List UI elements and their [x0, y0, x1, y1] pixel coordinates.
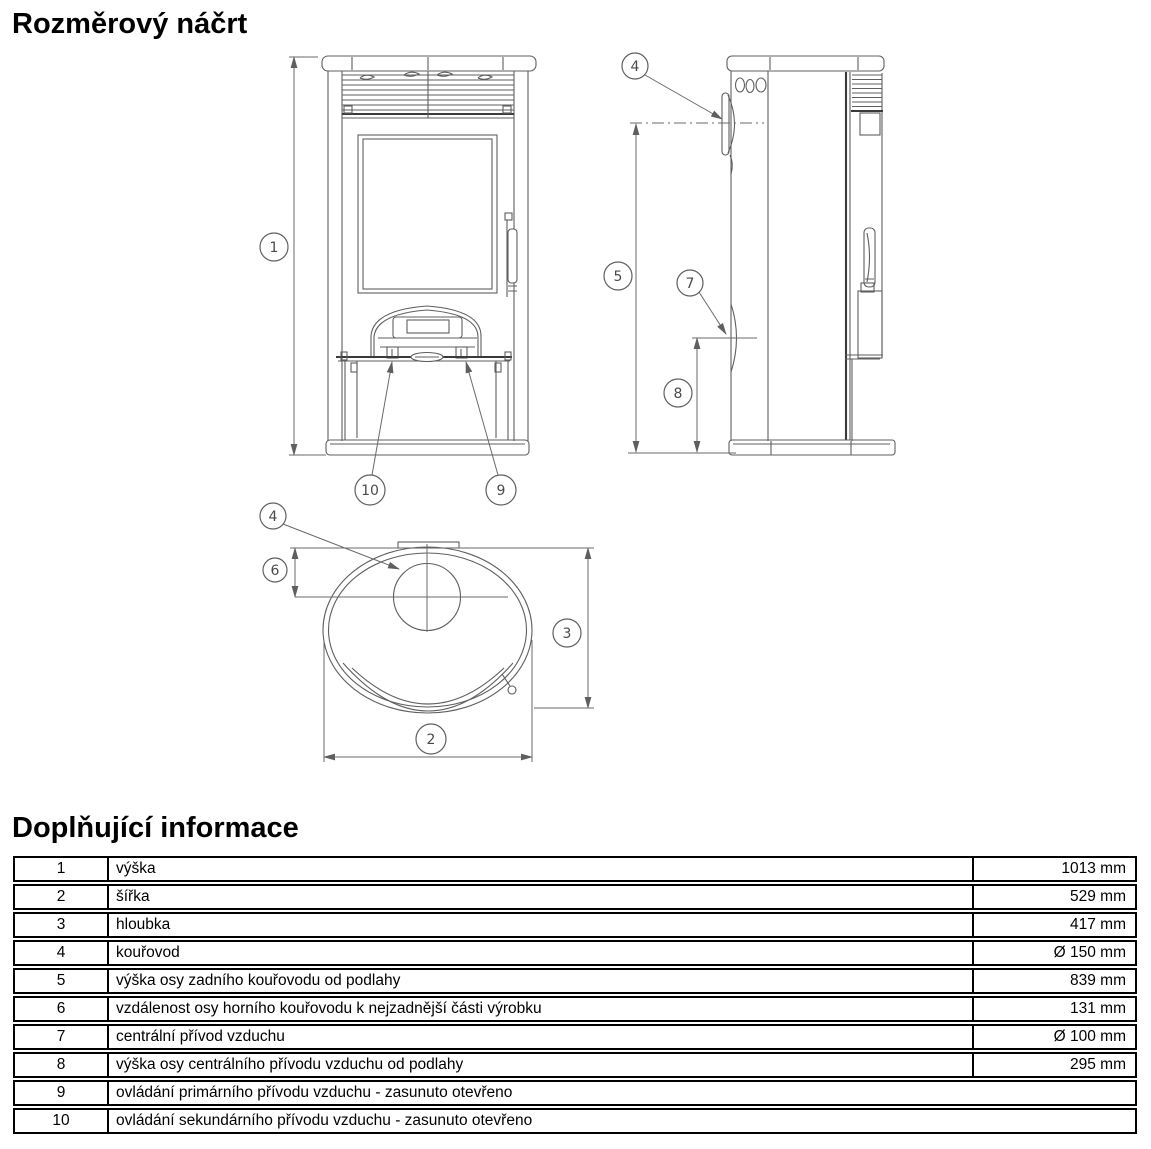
- row-label: výška osy zadního kouřovodu od podlahy: [109, 970, 974, 992]
- callout-7: 7: [677, 270, 726, 334]
- row-number: 9: [15, 1082, 109, 1104]
- front-base-plate: [326, 440, 529, 455]
- callout-10: 10: [355, 362, 392, 505]
- row-label: centrální přívod vzduchu: [109, 1026, 974, 1048]
- row-value: [974, 1110, 1135, 1132]
- info-table: 1 výška 1013 mm 2 šířka 529 mm 3 hloubka…: [13, 856, 1137, 1136]
- row-label: hloubka: [109, 914, 974, 936]
- svg-text:7: 7: [686, 276, 695, 292]
- row-label: vzdálenost osy horního kouřovodu k nejza…: [109, 998, 974, 1020]
- callout-6: 6: [263, 558, 287, 582]
- section-title: Doplňující informace: [12, 812, 299, 845]
- callout-4-side: 4: [622, 53, 722, 119]
- row-value: Ø 150 mm: [974, 942, 1135, 964]
- row-label: šířka: [109, 886, 974, 908]
- row-value: 131 mm: [974, 998, 1135, 1020]
- row-number: 6: [15, 998, 109, 1020]
- top-view: 6 3 2 4: [260, 503, 594, 762]
- svg-text:9: 9: [497, 483, 506, 499]
- row-label: výška: [109, 858, 974, 880]
- page: Rozměrový náčrt: [0, 0, 1151, 1149]
- side-latch-box: [858, 291, 882, 358]
- row-value: 417 mm: [974, 914, 1135, 936]
- central-air-inlet: [692, 304, 757, 372]
- front-view: 1 10 9: [260, 56, 536, 505]
- svg-text:10: 10: [361, 483, 379, 499]
- callout-3: 3: [553, 619, 581, 647]
- row-label: ovládání sekundárního přívodu vzduchu - …: [109, 1110, 974, 1132]
- front-lower-arch: [371, 306, 481, 358]
- row-value: 839 mm: [974, 970, 1135, 992]
- side-top-plate: [727, 56, 884, 71]
- svg-text:2: 2: [427, 732, 436, 748]
- row-number: 2: [15, 886, 109, 908]
- row-number: 5: [15, 970, 109, 992]
- side-base-plate: [729, 440, 895, 455]
- row-label: ovládání primárního přívodu vzduchu - za…: [109, 1082, 974, 1104]
- flue-collar: [722, 93, 735, 174]
- front-door-window: [358, 135, 497, 293]
- svg-text:1: 1: [270, 240, 279, 256]
- table-row: 5 výška osy zadního kouřovodu od podlahy…: [13, 968, 1137, 994]
- row-number: 10: [15, 1110, 109, 1132]
- side-view: 5 8 4 7: [604, 53, 895, 455]
- row-value: 295 mm: [974, 1054, 1135, 1076]
- dimension-drawing: 1 10 9: [0, 0, 1151, 800]
- table-row: 6 vzdálenost osy horního kouřovodu k nej…: [13, 996, 1137, 1022]
- table-row: 2 šířka 529 mm: [13, 884, 1137, 910]
- svg-text:3: 3: [563, 626, 572, 642]
- table-row: 8 výška osy centrálního přívodu vzduchu …: [13, 1052, 1137, 1078]
- table-row: 4 kouřovod Ø 150 mm: [13, 940, 1137, 966]
- callout-2: 2: [416, 724, 446, 754]
- table-row: 9 ovládání primárního přívodu vzduchu - …: [13, 1080, 1137, 1106]
- row-label: kouřovod: [109, 942, 974, 964]
- dimension-height: [289, 57, 326, 455]
- callout-5: 5: [604, 262, 632, 290]
- front-top-plate: [322, 56, 536, 71]
- svg-text:4: 4: [269, 509, 278, 525]
- top-vent-holes: [736, 78, 767, 93]
- table-row: 10 ovládání sekundárního přívodu vzduchu…: [13, 1108, 1137, 1134]
- row-number: 1: [15, 858, 109, 880]
- side-grille: [851, 75, 883, 135]
- callout-1: 1: [260, 233, 288, 261]
- row-value: [974, 1082, 1135, 1104]
- row-value: 1013 mm: [974, 858, 1135, 880]
- row-number: 4: [15, 942, 109, 964]
- front-door-handle: [505, 213, 517, 297]
- svg-text:8: 8: [674, 386, 683, 402]
- front-lower-cabinet: [345, 361, 508, 440]
- row-value: 529 mm: [974, 886, 1135, 908]
- side-door-handle: [864, 228, 875, 287]
- row-number: 3: [15, 914, 109, 936]
- row-label: výška osy centrálního přívodu vzduchu od…: [109, 1054, 974, 1076]
- svg-text:6: 6: [271, 563, 280, 579]
- callout-8: 8: [664, 379, 692, 407]
- row-value: Ø 100 mm: [974, 1026, 1135, 1048]
- front-grille: [342, 71, 514, 118]
- svg-text:4: 4: [631, 59, 640, 75]
- svg-text:5: 5: [614, 269, 623, 285]
- table-row: 7 centrální přívod vzduchu Ø 100 mm: [13, 1024, 1137, 1050]
- row-number: 8: [15, 1054, 109, 1076]
- table-row: 3 hloubka 417 mm: [13, 912, 1137, 938]
- row-number: 7: [15, 1026, 109, 1048]
- table-row: 1 výška 1013 mm: [13, 856, 1137, 882]
